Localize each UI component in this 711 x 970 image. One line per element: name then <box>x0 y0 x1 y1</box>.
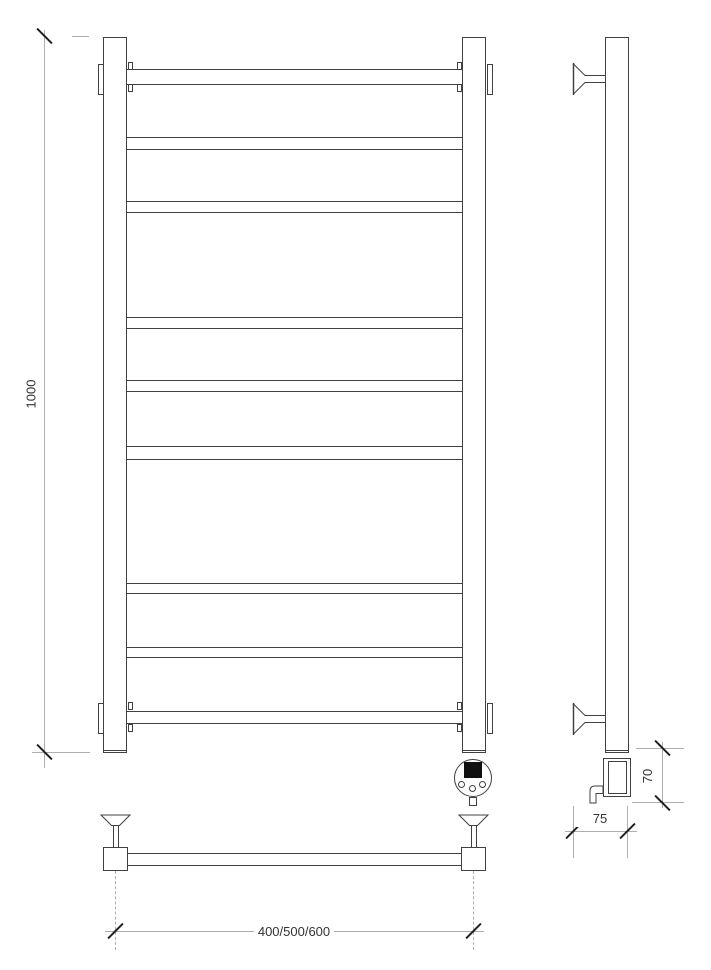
front-right-post <box>462 37 486 753</box>
bar-joint <box>128 84 133 92</box>
towel-rail-technical-drawing: 1000 <box>0 0 711 970</box>
front-left-post <box>103 37 127 753</box>
side-post-bottom-cap <box>606 750 628 751</box>
heater-control-display <box>464 762 482 778</box>
bar-joint <box>457 84 462 92</box>
height-dimension-label: 1000 <box>23 380 39 409</box>
bar-joint <box>128 62 133 70</box>
heater-control-button <box>469 785 476 792</box>
bottom-mount-bar <box>127 711 462 724</box>
rung <box>127 583 462 594</box>
height-dimension-label-wrap: 1000 <box>6 369 56 419</box>
wall-plate-bottom-left <box>98 703 104 734</box>
plan-post-right <box>461 847 486 871</box>
rung <box>127 201 462 213</box>
bar-joint <box>457 62 462 70</box>
wall-plate-top-right <box>487 64 493 95</box>
element-height-extension-bottom <box>632 802 684 803</box>
front-left-post-bottom-cap <box>104 750 126 751</box>
plan-post-left <box>103 847 128 871</box>
element-height-label-wrap: 70 <box>628 756 668 796</box>
bar-joint <box>457 724 462 732</box>
rung <box>127 647 462 658</box>
bar-joint <box>128 702 133 710</box>
rung <box>127 317 462 329</box>
wall-plate-bottom-right <box>487 703 493 734</box>
heater-control-button <box>458 781 465 788</box>
width-centerline-right <box>473 871 474 950</box>
height-extension-top <box>72 36 89 37</box>
bar-joint <box>457 702 462 710</box>
depth-label: 75 <box>575 811 625 827</box>
height-extension-bottom <box>32 752 90 753</box>
plan-bracket-left <box>100 814 131 848</box>
heater-control-stem <box>469 797 477 806</box>
bar-joint <box>128 724 133 732</box>
side-cable-elbow <box>589 785 604 804</box>
side-heater-housing-inner <box>608 761 627 794</box>
wall-plate-top-left <box>98 64 104 95</box>
width-centerline-left <box>115 871 116 950</box>
element-height-extension-top <box>636 748 684 749</box>
element-height-label: 70 <box>640 769 656 783</box>
rung <box>127 380 462 392</box>
top-mount-bar <box>127 69 462 85</box>
rung <box>127 446 462 460</box>
side-post <box>605 37 629 753</box>
side-wall-bracket-bottom <box>571 701 607 737</box>
side-wall-bracket-top <box>571 61 607 97</box>
plan-bracket-right <box>458 814 489 848</box>
front-right-post-bottom-cap <box>463 750 485 751</box>
width-options-label: 400/500/600 <box>254 924 334 940</box>
rung <box>127 137 462 150</box>
heater-control-button <box>479 781 486 788</box>
plan-crossbar <box>128 853 461 866</box>
